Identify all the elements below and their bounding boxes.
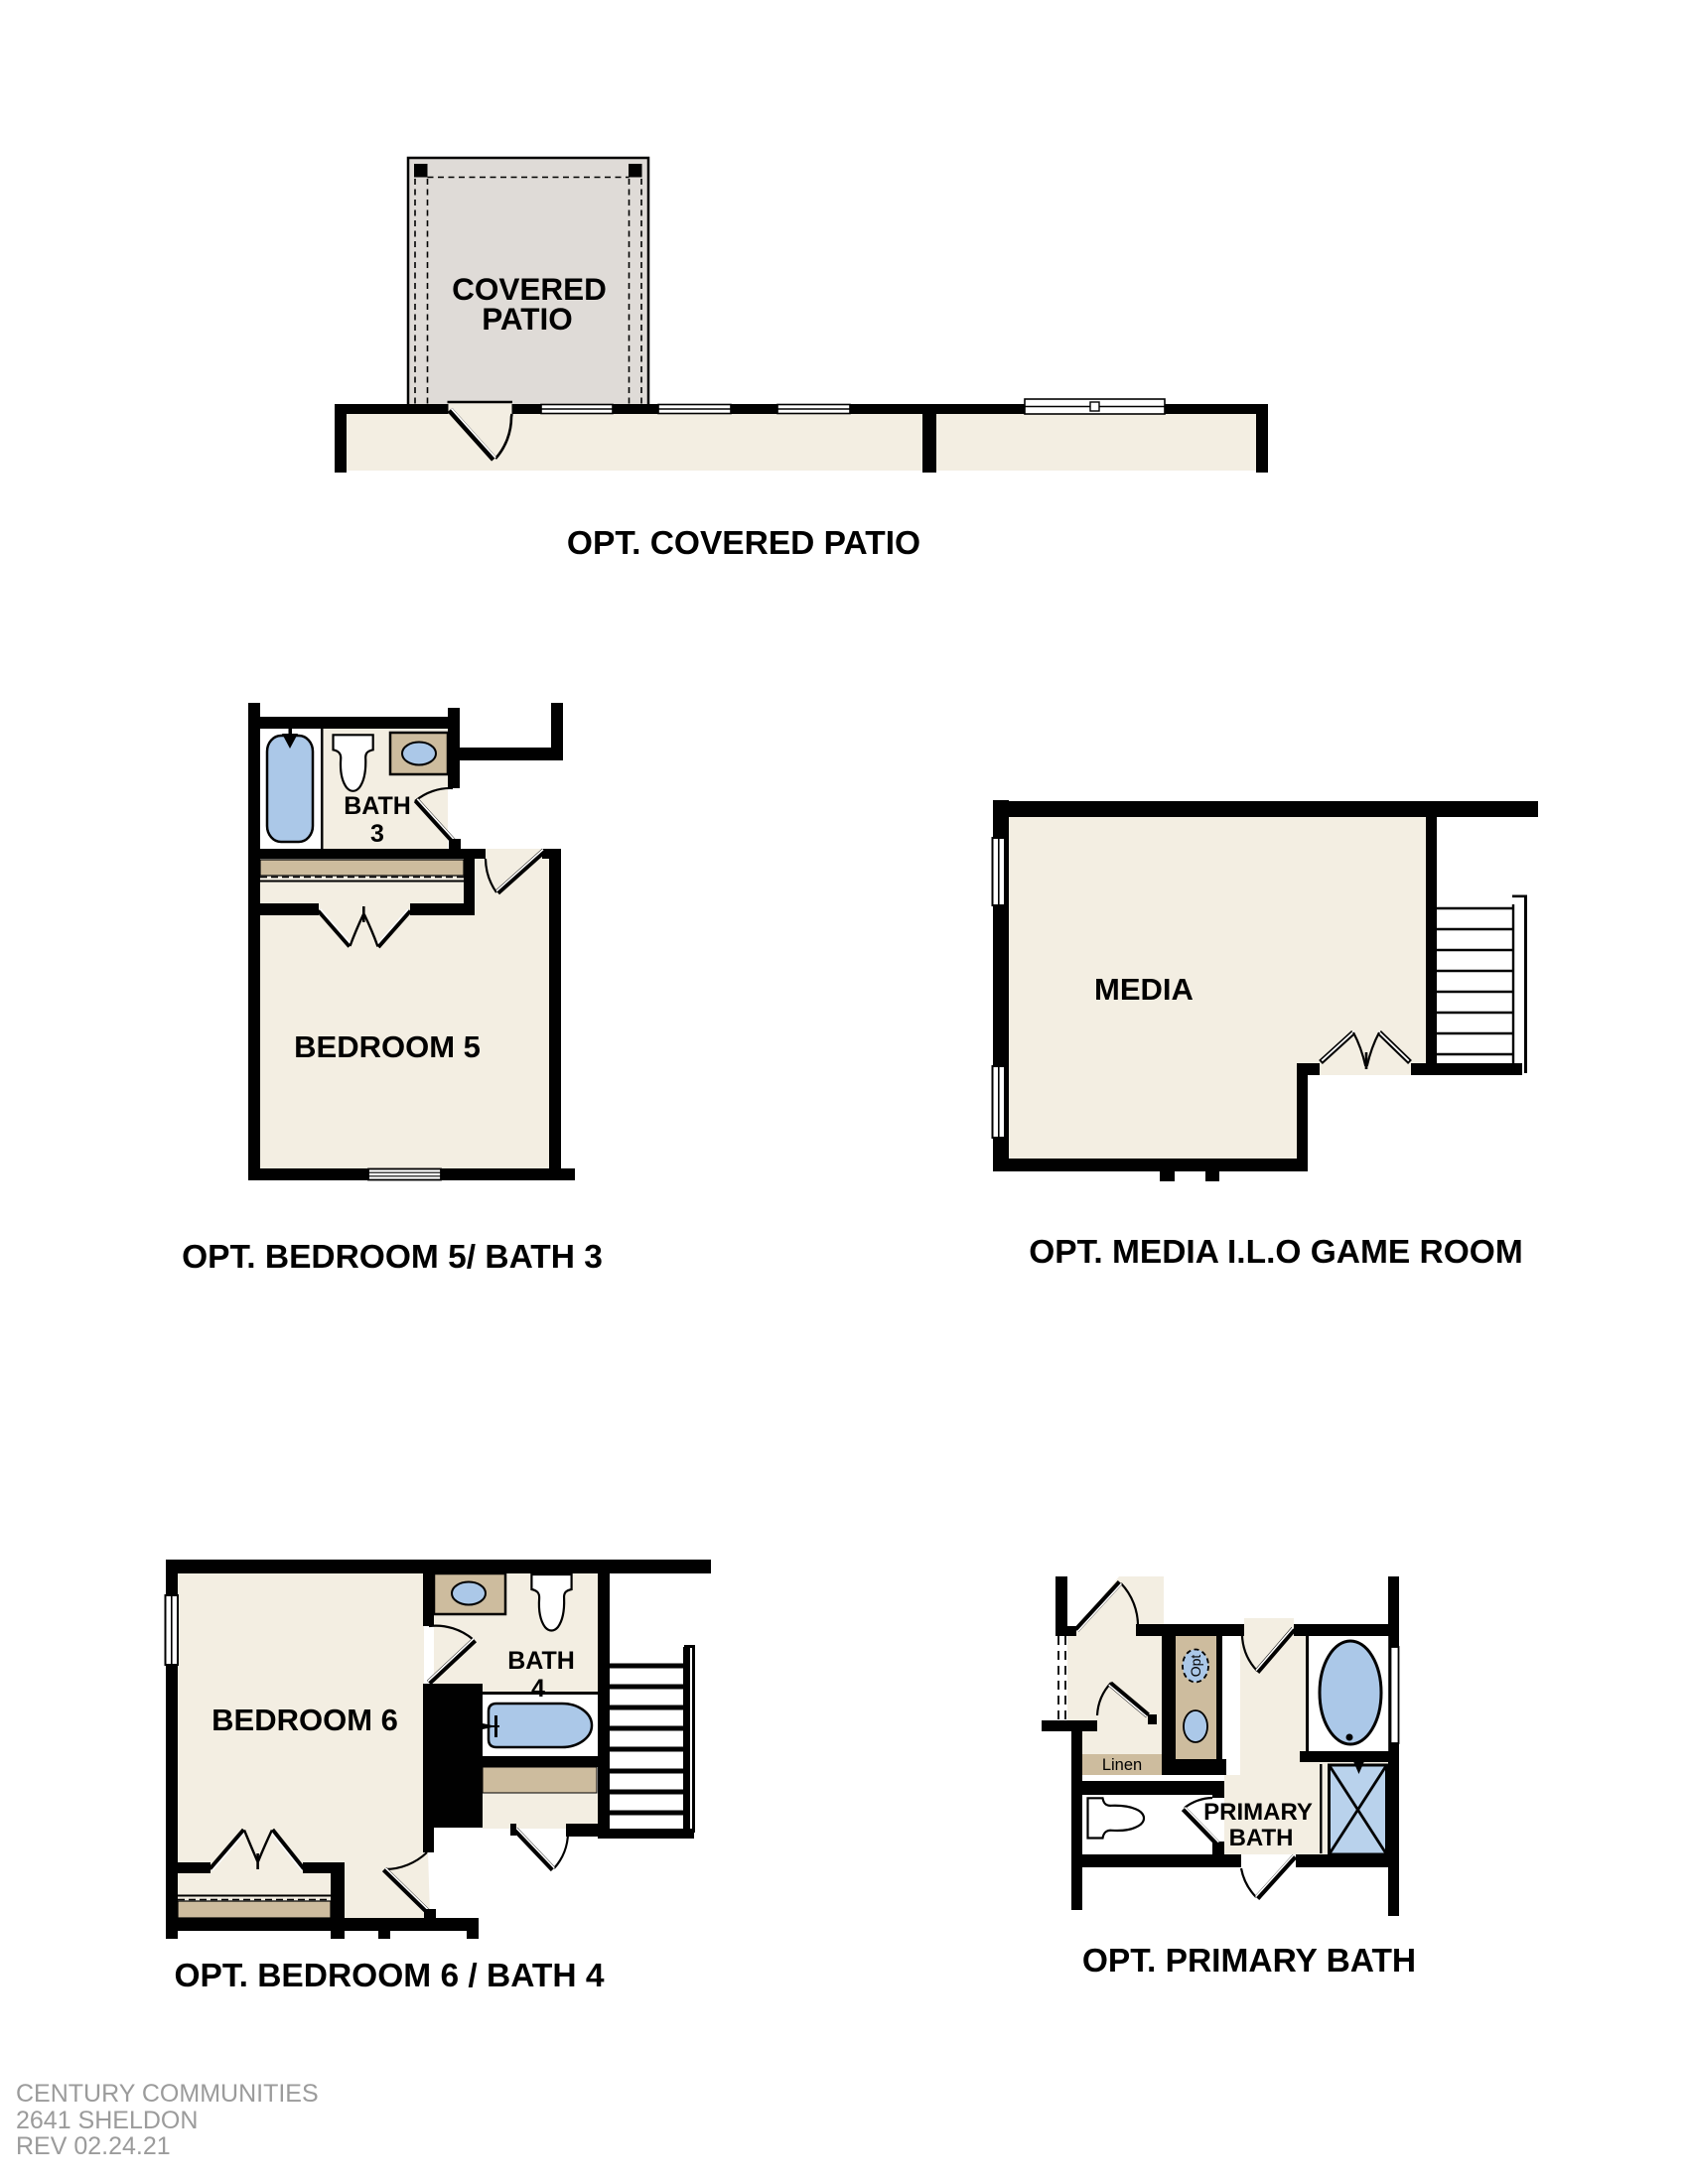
svg-text:REV 02.24.21: REV 02.24.21 <box>16 2132 171 2160</box>
svg-text:4: 4 <box>531 1675 545 1703</box>
svg-text:OPT. BEDROOM 5/ BATH 3: OPT. BEDROOM 5/ BATH 3 <box>182 1239 603 1276</box>
svg-text:OPT. MEDIA I.L.O GAME ROOM: OPT. MEDIA I.L.O GAME ROOM <box>1029 1234 1523 1271</box>
svg-text:BEDROOM 5: BEDROOM 5 <box>294 1029 481 1064</box>
svg-text:Linen: Linen <box>1102 1756 1142 1774</box>
svg-text:PATIO: PATIO <box>482 301 573 337</box>
svg-text:Opt: Opt <box>1188 1655 1203 1678</box>
svg-text:BEDROOM 6: BEDROOM 6 <box>211 1703 398 1737</box>
svg-text:BATH: BATH <box>344 792 411 820</box>
svg-text:OPT. COVERED PATIO: OPT. COVERED PATIO <box>567 525 920 562</box>
svg-text:OPT. PRIMARY BATH: OPT. PRIMARY BATH <box>1082 1943 1416 1979</box>
svg-text:3: 3 <box>370 820 384 848</box>
svg-text:BATH: BATH <box>1229 1825 1294 1851</box>
svg-text:CENTURY COMMUNITIES: CENTURY COMMUNITIES <box>16 2080 319 2108</box>
svg-text:OPT. BEDROOM 6 / BATH 4: OPT. BEDROOM 6 / BATH 4 <box>174 1958 604 1994</box>
svg-text:PRIMARY: PRIMARY <box>1203 1799 1313 1826</box>
svg-text:BATH: BATH <box>507 1647 575 1675</box>
svg-text:2641 SHELDON: 2641 SHELDON <box>16 2107 198 2134</box>
svg-text:MEDIA: MEDIA <box>1094 972 1194 1007</box>
